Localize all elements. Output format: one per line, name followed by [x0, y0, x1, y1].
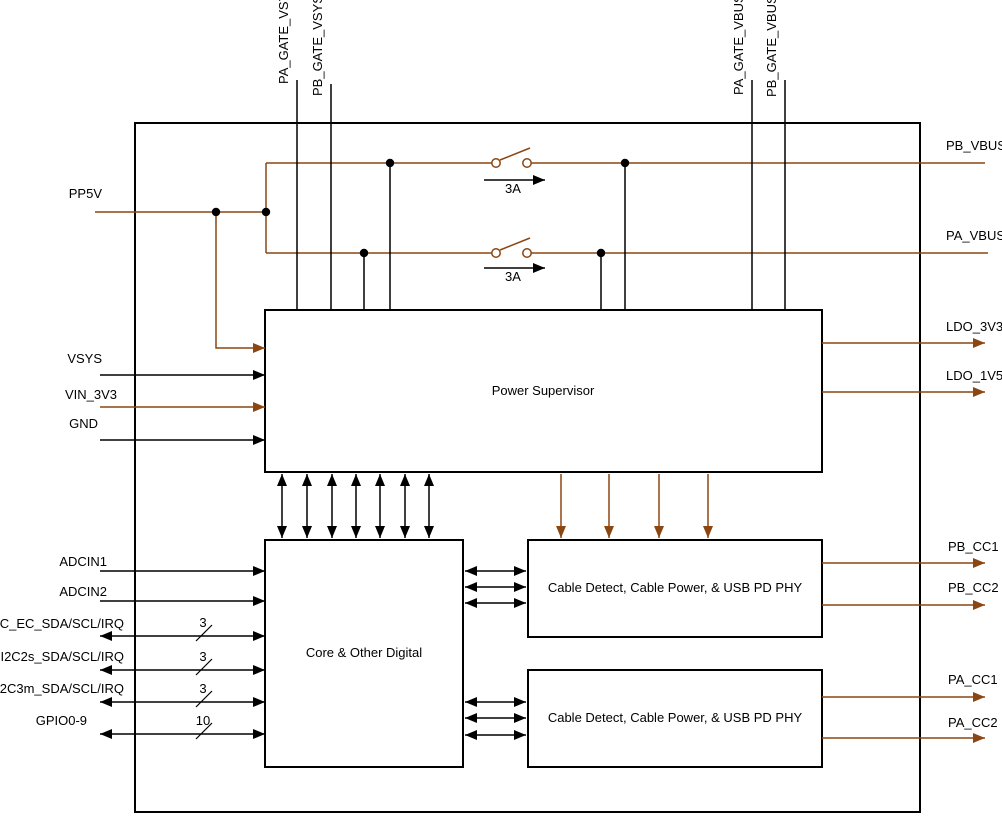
pin-label-pa-cc1: PA_CC1: [948, 672, 998, 687]
pin-label-gpio: GPIO0-9: [36, 713, 87, 728]
pin-label-ldo-1v5: LDO_1V5: [946, 368, 1002, 383]
pin-label-adcin2: ADCIN2: [59, 584, 107, 599]
switch-contact: [492, 249, 500, 257]
gpio-bus-width: 10: [196, 713, 210, 728]
pin-label-pa-vbus: PA_VBUS: [946, 228, 1002, 243]
pin-label-vsys: VSYS: [67, 351, 102, 366]
pin-label-pb-vbus: PB_VBUS: [946, 138, 1002, 153]
i2c3m-bus-width: 3: [199, 681, 206, 696]
pin-label-ldo-3v3: LDO_3V3: [946, 319, 1002, 334]
switch-b-rating-label: 3A: [505, 181, 521, 196]
pin-label-i2c2s: I2C2s_SDA/SCL/IRQ: [0, 649, 124, 664]
pd-phy-b-label: Cable Detect, Cable Power, & USB PD PHY: [548, 580, 803, 595]
switch-contact: [523, 159, 531, 167]
pin-label-pb-cc2: PB_CC2: [948, 580, 999, 595]
pin-label-pa-gate-vsys: PA_GATE_VSYS: [276, 0, 291, 84]
i2c-ec-bus-width: 3: [199, 615, 206, 630]
junction-dot: [386, 159, 394, 167]
diagram-canvas: Power Supervisor Core & Other Digital Ca…: [0, 0, 1002, 819]
junction-dot: [360, 249, 368, 257]
pin-label-pa-cc2: PA_CC2: [948, 715, 998, 730]
pin-label-gnd: GND: [69, 416, 98, 431]
pd-phy-a-label: Cable Detect, Cable Power, & USB PD PHY: [548, 710, 803, 725]
junction-dot: [212, 208, 220, 216]
pin-label-vin-3v3: VIN_3V3: [65, 387, 117, 402]
junction-dot: [262, 208, 270, 216]
pin-label-pp5v: PP5V: [69, 186, 103, 201]
pin-label-adcin1: ADCIN1: [59, 554, 107, 569]
pin-label-i2c3m: I2C3m_SDA/SCL/IRQ: [0, 681, 124, 696]
power-supervisor-label: Power Supervisor: [492, 383, 595, 398]
switch-contact: [492, 159, 500, 167]
core-digital-label: Core & Other Digital: [306, 645, 422, 660]
i2c2s-bus-width: 3: [199, 649, 206, 664]
pin-label-pb-gate-vbus: PB_GATE_VBUS: [764, 0, 779, 97]
pin-label-i2c-ec: I2C_EC_SDA/SCL/IRQ: [0, 616, 124, 631]
junction-dot: [621, 159, 629, 167]
pin-label-pb-gate-vsys: PB_GATE_VSYS: [310, 0, 325, 96]
switch-a-rating-label: 3A: [505, 269, 521, 284]
pin-label-pb-cc1: PB_CC1: [948, 539, 999, 554]
pin-label-pa-gate-vbus: PA_GATE_VBUS: [731, 0, 746, 95]
junction-dot: [597, 249, 605, 257]
switch-contact: [523, 249, 531, 257]
usb-pd-block-diagram: Power Supervisor Core & Other Digital Ca…: [0, 0, 1002, 819]
